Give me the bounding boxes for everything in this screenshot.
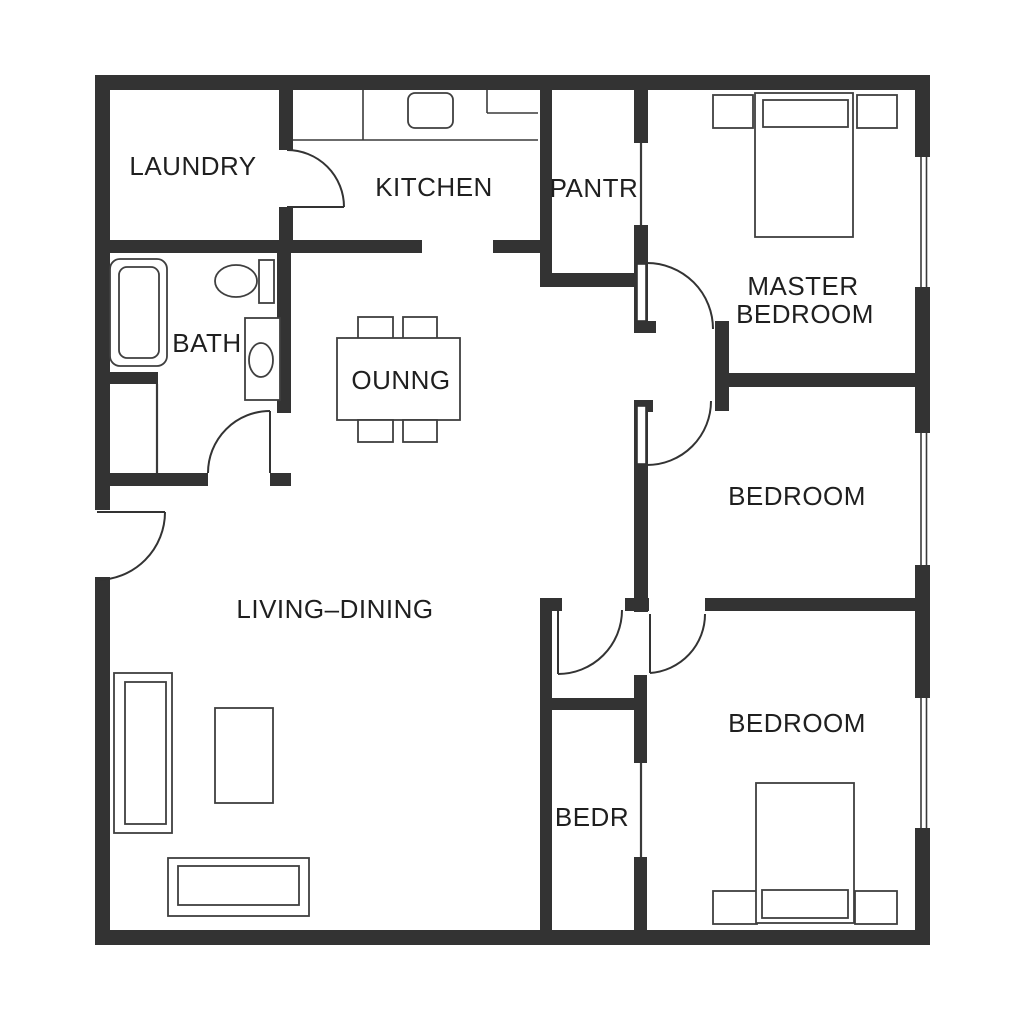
chair-icon xyxy=(358,317,393,339)
floor-plan-drawing: LAUNDRY KITCHEN PANTR MASTER BEDROOM BAT… xyxy=(0,0,1024,1024)
room-label-pantry: PANTR xyxy=(550,173,639,203)
wall-pantry-right-upper xyxy=(634,90,648,143)
wall-bedr-left xyxy=(540,598,552,930)
room-label-dining-nook: OUNNG xyxy=(351,365,450,395)
nightstand-icon xyxy=(713,95,753,128)
nightstand-icon xyxy=(713,891,757,924)
stove-icon xyxy=(408,93,453,128)
room-label-bedroom-middle: BEDROOM xyxy=(728,481,866,511)
wall-right-1 xyxy=(915,75,930,157)
living-furniture xyxy=(114,673,309,916)
chair-icon xyxy=(358,420,393,442)
wall-hall-tcap xyxy=(715,321,729,411)
door-swing-icon xyxy=(558,610,622,674)
room-label-laundry: LAUNDRY xyxy=(129,151,256,181)
wall-bedr-top xyxy=(540,698,638,710)
chair-icon xyxy=(403,317,437,339)
wall-hall-spine-cap-bottom xyxy=(625,598,649,611)
wall-pantry-bottom xyxy=(540,273,648,287)
window-icon xyxy=(921,433,927,565)
pillow-icon xyxy=(762,890,848,918)
wall-right-2 xyxy=(915,287,930,433)
door-swing-icon xyxy=(97,512,165,580)
pillow-icon xyxy=(763,100,848,127)
wall-top xyxy=(95,75,930,90)
sink-icon xyxy=(245,318,280,400)
wall-pantry-right-cap xyxy=(634,321,656,333)
wall-right-3 xyxy=(915,565,930,698)
wall-bedr-right-upper xyxy=(634,675,647,763)
nightstand-icon xyxy=(855,891,897,924)
room-label-living-dining: LIVING–DINING xyxy=(236,594,433,624)
room-label-bedroom-bottom: BEDROOM xyxy=(728,708,866,738)
bottom-bed-group xyxy=(713,783,897,924)
room-label-master-bedroom-line2: BEDROOM xyxy=(736,299,874,329)
nightstand-icon xyxy=(857,95,897,128)
kitchen-fixtures xyxy=(293,90,538,140)
wall-laundry-right-upper xyxy=(279,90,293,150)
wall-master-bedroom2-divider xyxy=(715,373,915,387)
window-icon xyxy=(921,698,927,828)
wall-laundry-right-lower xyxy=(279,207,293,240)
sofa-icon xyxy=(168,858,309,916)
door-swing-icon xyxy=(637,263,713,329)
wall-left-lower xyxy=(95,577,110,945)
room-label-bedr: BEDR xyxy=(555,802,629,832)
wall-bedroom2-bedroom3-divider xyxy=(705,598,915,611)
wall-bedr-right-lower xyxy=(634,857,647,930)
door-swing-icon xyxy=(208,411,270,473)
wall-bath-closet-stub xyxy=(110,372,158,384)
master-bed-group xyxy=(713,93,897,237)
toilet-icon xyxy=(215,260,274,303)
wall-bath-right-cap xyxy=(270,473,291,486)
sofa-icon xyxy=(114,673,172,833)
room-label-kitchen: KITCHEN xyxy=(375,172,493,202)
door-swing-icon xyxy=(649,597,705,673)
floor-plan-canvas: LAUNDRY KITCHEN PANTR MASTER BEDROOM BAT… xyxy=(0,0,1024,1024)
wall-bottom xyxy=(95,930,930,945)
wall-laundry-kitchen-south xyxy=(110,240,422,253)
room-label-master-bedroom-line1: MASTER xyxy=(747,271,858,301)
armchair-icon xyxy=(215,708,273,803)
wall-bath-bottom xyxy=(110,473,208,486)
window-icon xyxy=(921,157,927,287)
chair-icon xyxy=(403,420,437,442)
room-label-bath: BATH xyxy=(172,328,241,358)
door-swing-icon xyxy=(287,150,344,207)
wall-left-upper xyxy=(95,75,110,510)
windows xyxy=(921,157,927,828)
bathtub-icon xyxy=(110,259,167,366)
wall-right-4 xyxy=(915,828,930,945)
